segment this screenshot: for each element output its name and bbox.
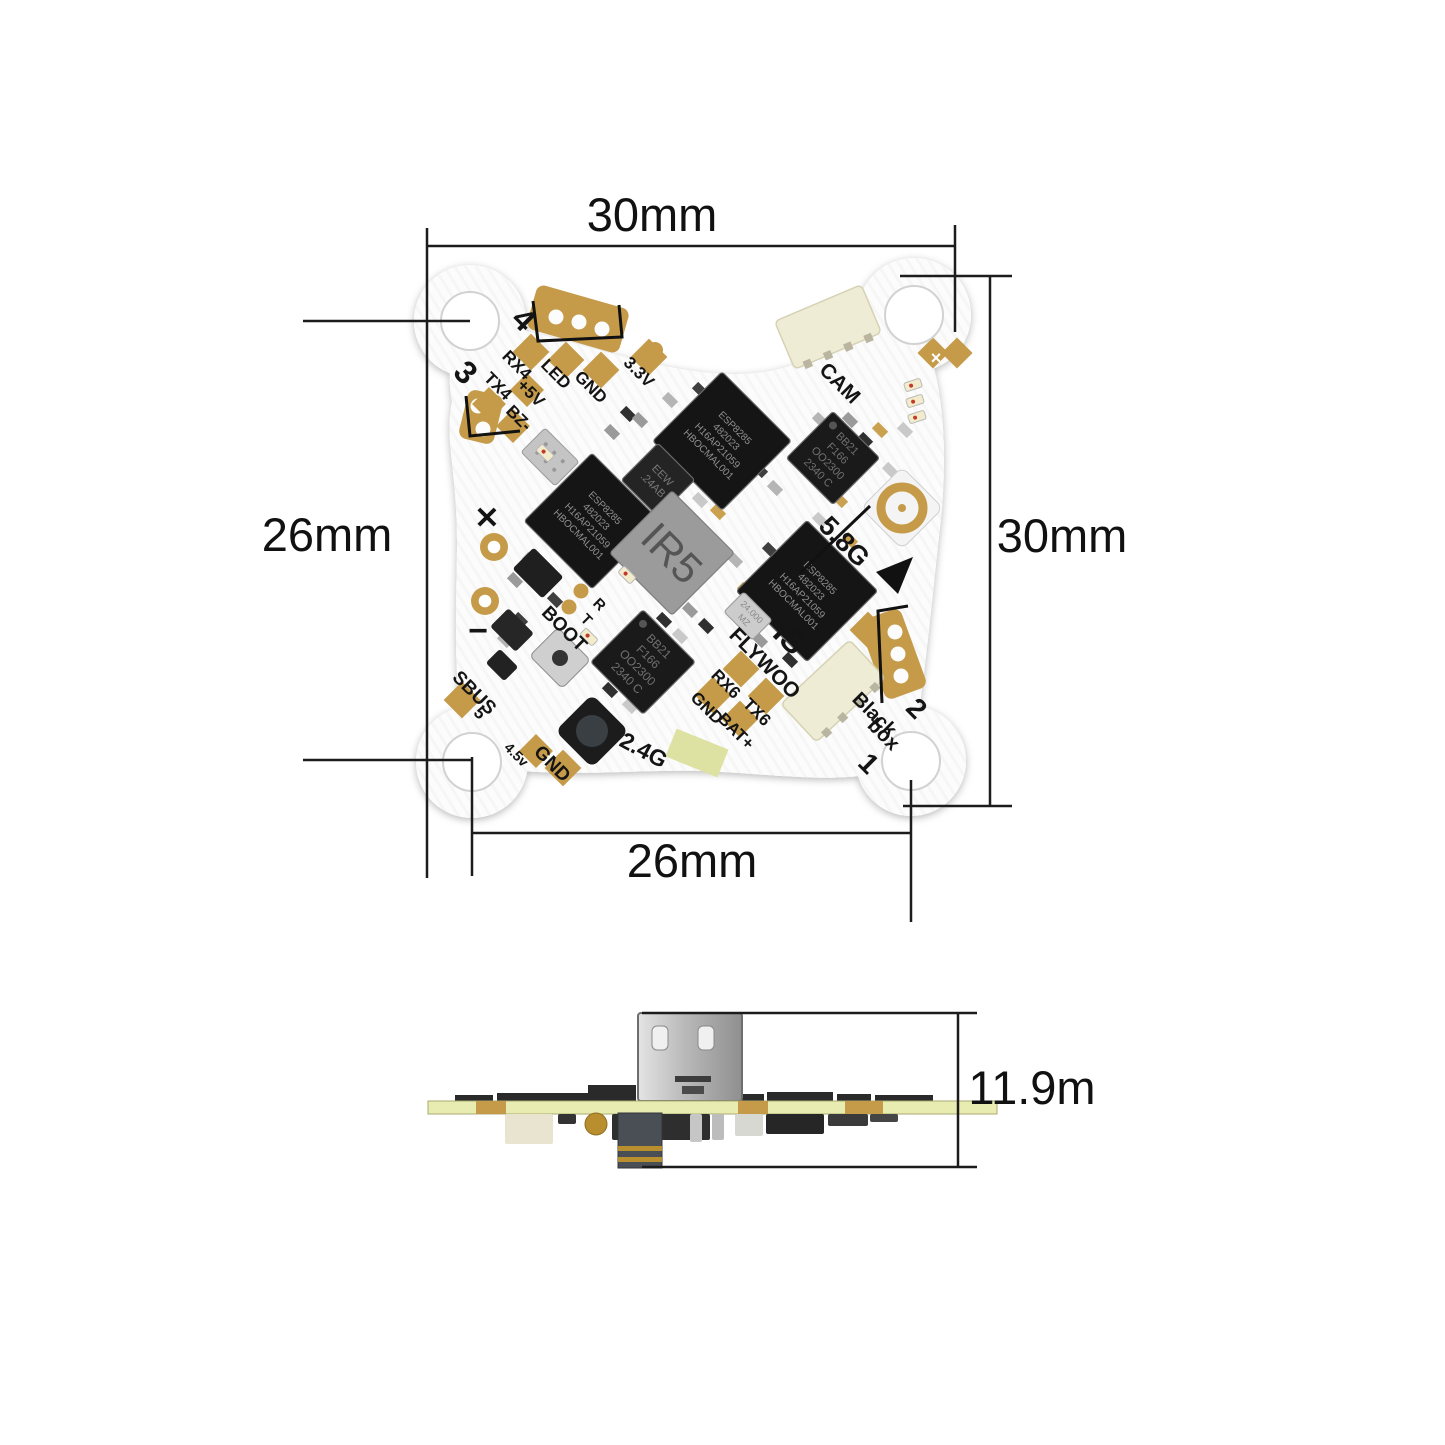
pad-hole [572, 315, 587, 330]
side-component [497, 1093, 593, 1101]
diagram-canvas: ESP8285482023H16AP21059HBOCMAL001ESP8285… [0, 0, 1445, 1445]
pad-hole [488, 541, 501, 554]
usb-slot [682, 1086, 704, 1094]
side-component [505, 1114, 553, 1144]
usb-connector [638, 1013, 742, 1101]
side-component [735, 1114, 763, 1136]
dimension-label-left-height: 26mm [262, 508, 393, 561]
usb-slot [675, 1076, 711, 1082]
pad-hole [549, 310, 564, 325]
side-component [870, 1114, 898, 1122]
side-component [588, 1085, 636, 1101]
pcb-side-view [428, 1013, 997, 1168]
side-component [690, 1114, 702, 1142]
ufl-center-pin [898, 504, 906, 512]
pcb-copper-segment [738, 1101, 768, 1114]
dimension-label-side-height: 11.9m [968, 1061, 1095, 1114]
side-component [875, 1095, 933, 1101]
side-component [712, 1114, 724, 1140]
side-component [455, 1095, 493, 1101]
pad-hole [891, 647, 906, 662]
product-dimension-diagram: ESP8285482023H16AP21059HBOCMAL001ESP8285… [0, 0, 1445, 1445]
dimension-label-top-width: 30mm [587, 188, 718, 241]
pad-hole [595, 322, 610, 337]
pillar-gold-stripe [618, 1146, 662, 1151]
pad-hole [479, 595, 492, 608]
silkscreen-label: ✕ [474, 502, 499, 535]
gold-dot-pad [647, 342, 663, 358]
component-marking [552, 650, 568, 666]
side-component [837, 1094, 871, 1101]
side-component [742, 1094, 764, 1101]
side-component [766, 1114, 824, 1134]
silkscreen-label: × [931, 348, 942, 368]
side-component [767, 1092, 833, 1101]
mounting-hole [885, 286, 943, 344]
pcb-top-view: ESP8285482023H16AP21059HBOCMAL001ESP8285… [390, 250, 1010, 850]
usb-contact [652, 1026, 668, 1050]
side-component [828, 1114, 868, 1126]
gold-dot-pad [562, 600, 577, 615]
silkscreen-label: − [468, 612, 488, 650]
gold-dot-pad [574, 584, 589, 599]
pad-hole [888, 625, 903, 640]
usb-contact [698, 1026, 714, 1050]
pcb-side-board [428, 1101, 997, 1114]
side-component [558, 1114, 576, 1124]
pillar-gold-stripe [618, 1157, 662, 1162]
side-gold-connector [585, 1113, 607, 1135]
dimension-label-right-height: 30mm [997, 509, 1128, 562]
pad-hole [894, 669, 909, 684]
pcb-copper-segment [476, 1101, 506, 1114]
bind-button-cap [576, 715, 608, 747]
dimension-label-bottom-width: 26mm [627, 834, 758, 887]
pcb-copper-segment [845, 1101, 883, 1114]
